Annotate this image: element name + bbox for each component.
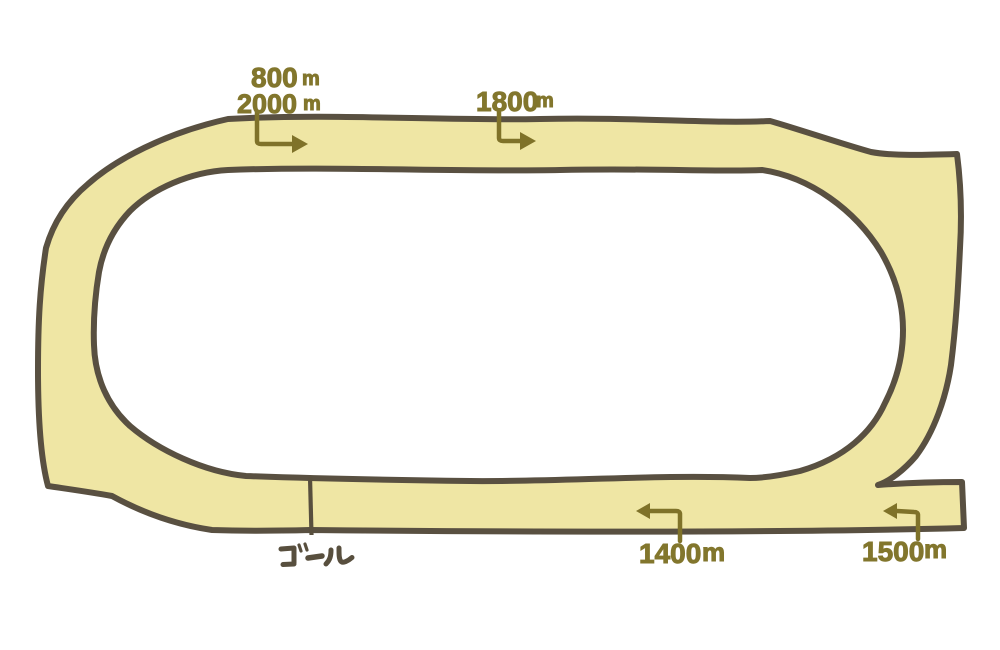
svg-text:2000: 2000	[237, 89, 297, 119]
svg-text:m: m	[536, 90, 554, 112]
svg-text:m: m	[924, 534, 947, 564]
svg-text:1400: 1400	[639, 538, 701, 569]
svg-text:m: m	[702, 537, 725, 567]
svg-text:m: m	[302, 68, 320, 90]
svg-text:1800: 1800	[476, 86, 538, 117]
svg-text:m: m	[303, 93, 321, 115]
svg-text:1500: 1500	[862, 536, 924, 567]
